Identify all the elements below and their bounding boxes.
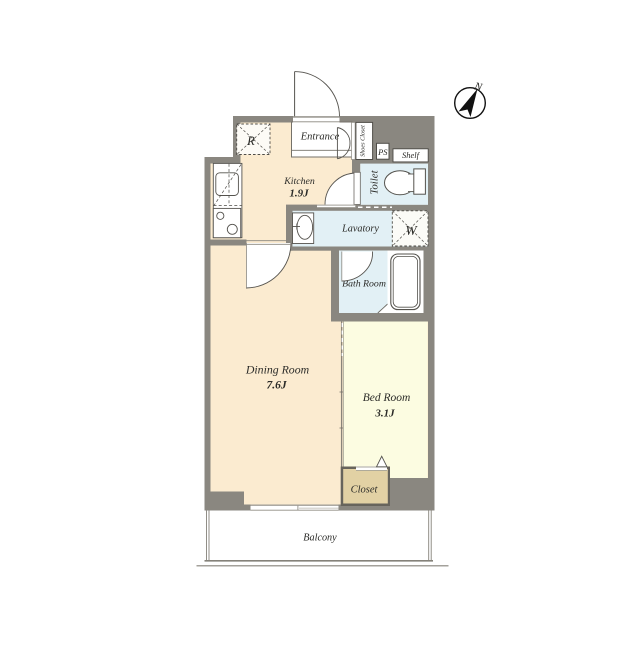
svg-text:Closet: Closet [351,485,379,496]
svg-text:PS: PS [377,147,388,157]
svg-text:Entrance: Entrance [300,132,340,143]
svg-text:Balcony: Balcony [303,533,337,544]
svg-text:Lavatory: Lavatory [341,224,379,235]
svg-text:R: R [246,134,255,148]
svg-text:W: W [405,223,418,238]
svg-text:3.1J: 3.1J [374,408,395,420]
svg-text:Bed Room: Bed Room [363,392,411,404]
svg-text:Kitchen: Kitchen [283,176,315,187]
svg-text:Dining Room: Dining Room [245,363,310,377]
svg-text:Shelf: Shelf [402,150,421,160]
svg-text:Shoes Closet: Shoes Closet [359,125,366,157]
svg-text:1.9J: 1.9J [289,188,309,200]
svg-text:7.6J: 7.6J [266,380,287,392]
svg-text:Toilet: Toilet [369,169,381,194]
